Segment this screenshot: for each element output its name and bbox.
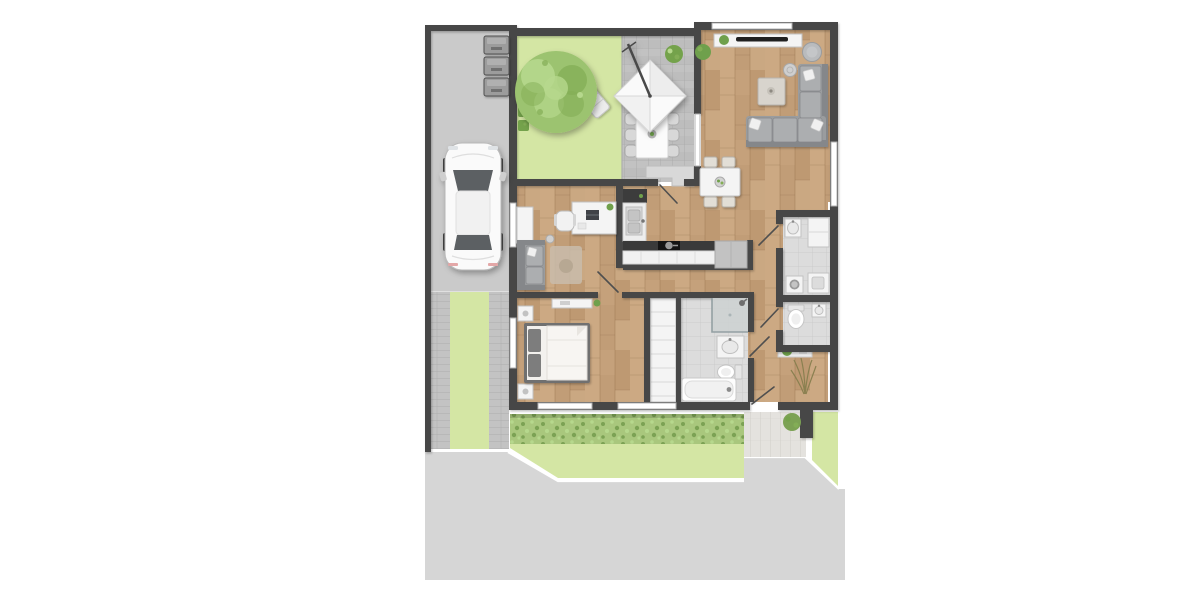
dining-chair — [722, 157, 735, 167]
wall-bath-top — [648, 292, 754, 298]
window-bath-bottom — [618, 403, 676, 409]
wall-living-left — [694, 22, 701, 114]
shower — [712, 298, 748, 332]
hob-icon — [658, 241, 680, 250]
wall-bedroom-top-east — [622, 292, 648, 298]
waste-bins — [484, 36, 509, 96]
kitchen-base-cabinets — [623, 251, 715, 264]
dining-chair — [722, 197, 735, 207]
patio-bush-icon — [783, 413, 801, 431]
bush-icon — [518, 120, 529, 131]
waste-bin-icon — [484, 36, 509, 54]
dining-chair — [704, 157, 717, 167]
tree-icon — [515, 51, 597, 133]
corner-plant-texture — [698, 47, 703, 52]
sideboard-plant-icon — [719, 35, 729, 45]
site-wall-left — [425, 25, 431, 452]
wall-wc-left-b — [776, 330, 783, 345]
window-bedroom-left — [510, 318, 516, 368]
wall-bottom-east — [778, 402, 838, 410]
window-bedroom-bottom — [538, 403, 592, 409]
hedge — [510, 414, 746, 444]
fruit-bowl-icon — [715, 177, 725, 187]
wall-bedroom-wardrobe — [644, 298, 650, 402]
utility-washbasin — [785, 219, 801, 237]
waste-bin-icon — [484, 78, 509, 96]
wall-kitchen-end — [747, 240, 753, 270]
floor-lamp-icon — [546, 235, 554, 243]
double-bed — [524, 323, 590, 383]
pouf — [803, 43, 822, 62]
wall-bedroom-top-west — [509, 292, 598, 298]
office-chair — [554, 211, 576, 231]
wall-utility-top — [776, 210, 830, 217]
window-terrace-sliding-door — [695, 114, 700, 166]
site-wall-top — [425, 25, 517, 31]
bathtub — [682, 378, 736, 401]
floor-plan-canvas — [0, 0, 1200, 600]
side-table — [784, 64, 797, 77]
car-icon — [439, 143, 507, 270]
wall-utility-left-b — [776, 248, 783, 302]
wall-garden-top — [509, 28, 701, 36]
wc-washbasin — [812, 304, 826, 317]
office-cabinet — [517, 207, 533, 243]
desk-plant-icon — [607, 204, 614, 211]
window-living-top — [712, 23, 792, 29]
wall-entry-stub-left — [648, 179, 658, 186]
wall-wc-bottom — [776, 345, 830, 352]
pillow — [528, 354, 541, 377]
terrace-bush-icon — [665, 45, 683, 63]
papers — [578, 223, 586, 229]
waste-bin-icon — [484, 57, 509, 75]
office-desk — [572, 202, 616, 234]
wall-entry-stub-right — [684, 179, 694, 186]
pillow — [528, 329, 541, 352]
wardrobe-unit — [650, 298, 676, 402]
sofa-pillow — [803, 69, 815, 81]
wall-office-top — [509, 179, 648, 186]
wc-toilet — [788, 305, 804, 329]
dining-chair — [704, 197, 717, 207]
walkway-wheel-tracks — [431, 292, 509, 450]
washing-machine-icon — [786, 276, 803, 293]
bath-toilet — [718, 365, 743, 379]
tub-faucet-icon — [727, 387, 732, 392]
kitchen-sink-icon — [626, 207, 645, 235]
wall-utility-left-a — [776, 217, 783, 224]
wall-patio-stub — [800, 410, 813, 438]
bedroom-plant-icon — [594, 300, 601, 307]
bedroom-sideboard — [552, 299, 592, 308]
duvet — [547, 326, 587, 380]
kitchen-tall-unit — [623, 189, 647, 203]
wall-bath-right-upper — [748, 292, 754, 332]
coffee-table — [758, 78, 785, 105]
wall-utility-wc — [776, 295, 830, 302]
wall-wc-left-a — [776, 302, 783, 307]
wall-wardrobe-bath — [676, 298, 681, 402]
window-living-right — [831, 142, 837, 206]
wall-office-kitchen — [616, 186, 623, 268]
tv-icon — [736, 37, 788, 42]
office-sofa — [517, 240, 545, 290]
sofa-pillow — [527, 247, 537, 257]
wall-right — [830, 22, 838, 410]
corner-plant-icon — [695, 44, 711, 60]
window-office-left — [510, 203, 516, 247]
wall-bath-right-lower — [748, 358, 754, 402]
beanbag — [559, 259, 573, 273]
bath-washbasin — [717, 336, 744, 358]
walkway-grass-strip — [450, 292, 489, 450]
